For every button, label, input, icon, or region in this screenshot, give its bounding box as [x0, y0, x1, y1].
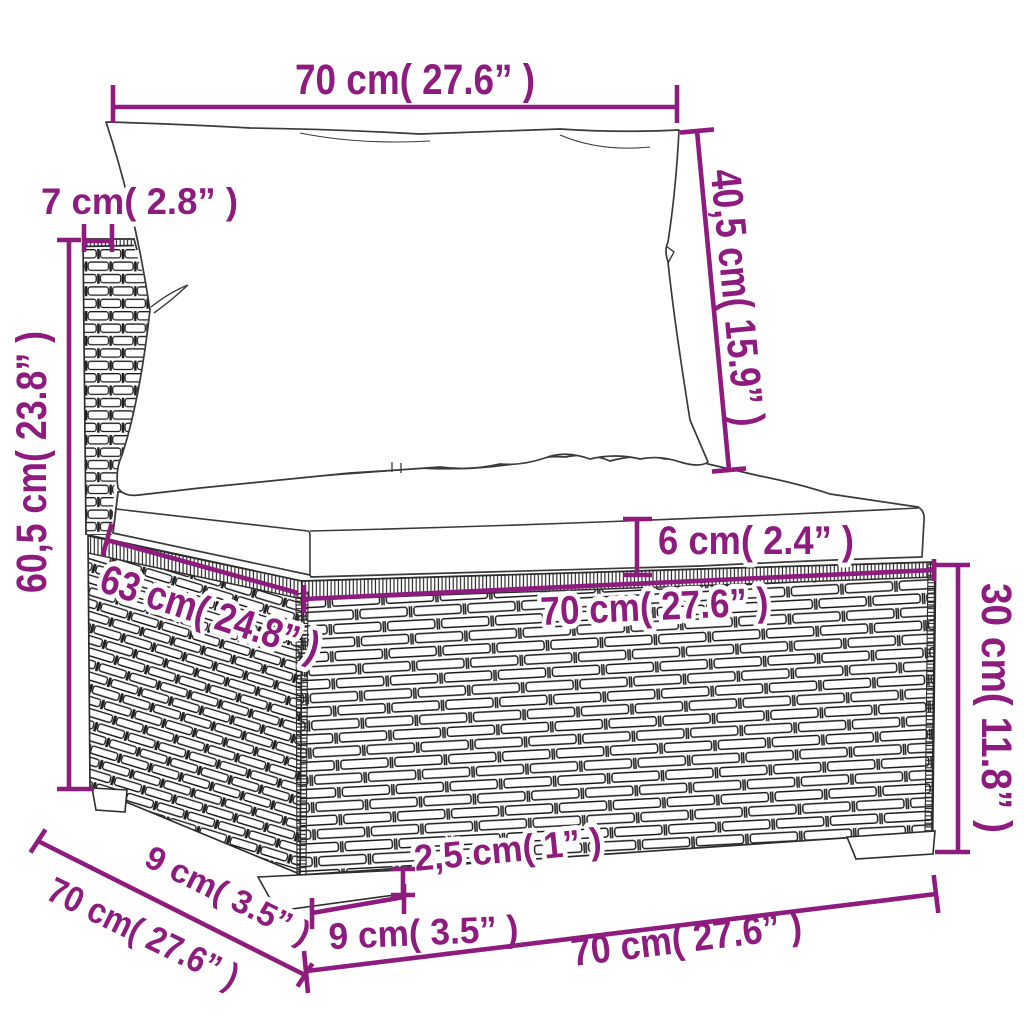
svg-text:6 cm( 2.4” ): 6 cm( 2.4” ): [658, 519, 854, 563]
svg-text:60,5 cm( 23.8” ): 60,5 cm( 23.8” ): [8, 331, 56, 593]
svg-text:70 cm( 27.6” ): 70 cm( 27.6” ): [295, 56, 535, 104]
svg-text:7 cm( 2.8” ): 7 cm( 2.8” ): [41, 181, 238, 222]
svg-text:30 cm( 11.8” ): 30 cm( 11.8” ): [972, 583, 1020, 833]
